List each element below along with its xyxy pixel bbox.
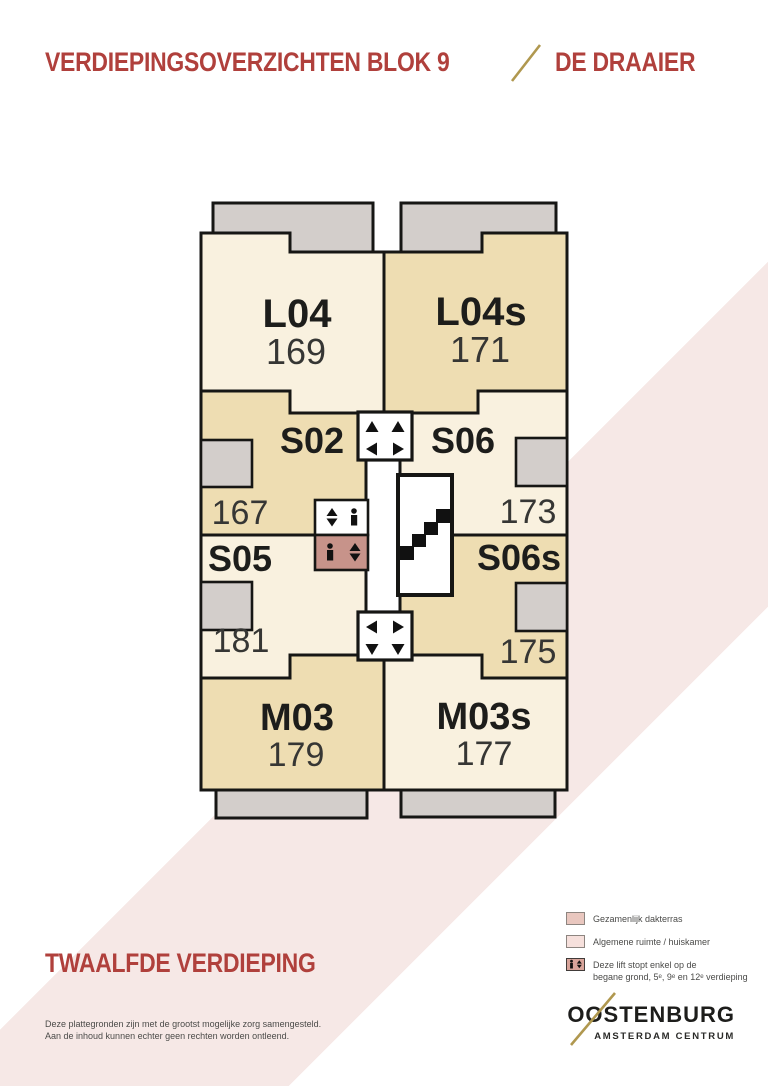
restricted-lift-person-icon	[327, 543, 333, 560]
unit-M03-code: M03	[260, 697, 334, 739]
project-name: DE DRAAIER	[555, 47, 695, 78]
lift-legend-icon	[566, 958, 585, 971]
disclaimer: Deze plattegronden zijn met de grootst m…	[45, 1018, 321, 1042]
disclaimer-line1: Deze plattegronden zijn met de grootst m…	[45, 1019, 321, 1029]
page-header: VERDIEPINGSOVERZICHTEN BLOK 9 DE DRAAIER	[45, 40, 720, 84]
lift-note-line2: begane grond, 5ᵉ, 9ᵉ en 12ᵉ verdieping	[593, 972, 748, 982]
unit-S02-number: 167	[212, 494, 269, 532]
unit-L04s-number: 171	[450, 329, 510, 370]
legend-item-dakterras: Gezamenlijk dakterras	[566, 912, 748, 925]
unit-L04-code: L04	[263, 292, 333, 336]
legend-label: Gezamenlijk dakterras	[593, 912, 683, 925]
unit-M03-number: 179	[268, 736, 325, 774]
unit-S06-number: 173	[500, 493, 557, 531]
floor-plan: L04 169 L04s 171 S02 167 S06 173 S05 181…	[190, 195, 580, 840]
legend-item-algemene-ruimte: Algemene ruimte / huiskamer	[566, 935, 748, 948]
legend-label: Deze lift stopt enkel op de begane grond…	[593, 958, 748, 983]
unit-S06s-number: 175	[500, 633, 557, 671]
logo-slash-icon	[567, 990, 623, 1048]
lift-box	[315, 500, 368, 570]
unit-L04-number: 169	[266, 331, 326, 372]
legend-item-lift: Deze lift stopt enkel op de begane grond…	[566, 958, 748, 983]
page-background: VERDIEPINGSOVERZICHTEN BLOK 9 DE DRAAIER	[0, 0, 768, 1086]
unit-M03s-number: 177	[456, 735, 513, 773]
unit-S02-code: S02	[280, 420, 344, 461]
lift-person-icon	[351, 508, 357, 525]
unit-S06s-code: S06s	[477, 537, 561, 578]
header-slash-icon	[509, 40, 543, 84]
landing-bottom-icon	[358, 612, 412, 660]
floor-label: TWAALFDE VERDIEPING	[45, 948, 316, 979]
unit-S05-code: S05	[208, 538, 272, 579]
legend: Gezamenlijk dakterras Algemene ruimte / …	[566, 912, 748, 993]
stairs-icon	[398, 475, 452, 595]
brand-logo: OOSTENBURG AMSTERDAM CENTRUM	[565, 1002, 735, 1042]
legend-label: Algemene ruimte / huiskamer	[593, 935, 710, 948]
dakterras-swatch-icon	[566, 912, 585, 925]
lift-note-line1: Deze lift stopt enkel op de	[593, 960, 697, 970]
algemene-ruimte-swatch-icon	[566, 935, 585, 948]
landing-top-icon	[358, 412, 412, 460]
page-title: VERDIEPINGSOVERZICHTEN BLOK 9	[45, 47, 449, 78]
disclaimer-line2: Aan de inhoud kunnen echter geen rechten…	[45, 1031, 289, 1041]
unit-M03s-code: M03s	[436, 696, 531, 738]
unit-L04s-code: L04s	[435, 290, 526, 334]
unit-S05-number: 181	[213, 622, 270, 660]
unit-S06-code: S06	[431, 420, 495, 461]
